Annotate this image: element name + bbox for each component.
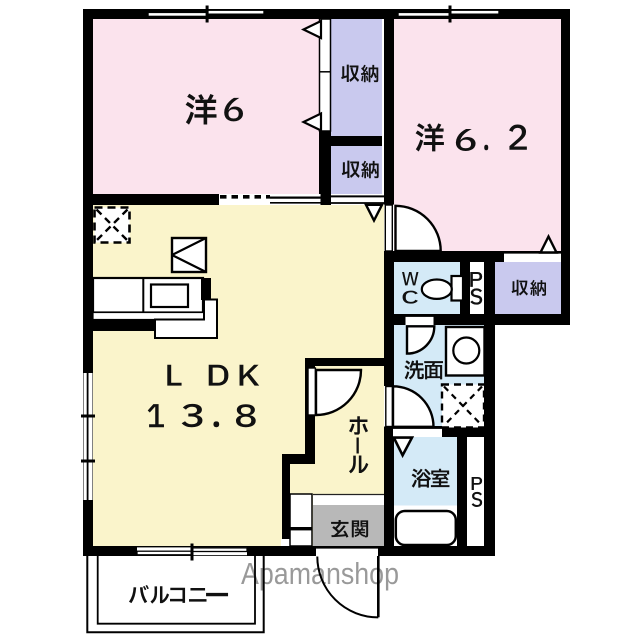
svg-text:Apamanshop: Apamanshop — [241, 556, 399, 591]
